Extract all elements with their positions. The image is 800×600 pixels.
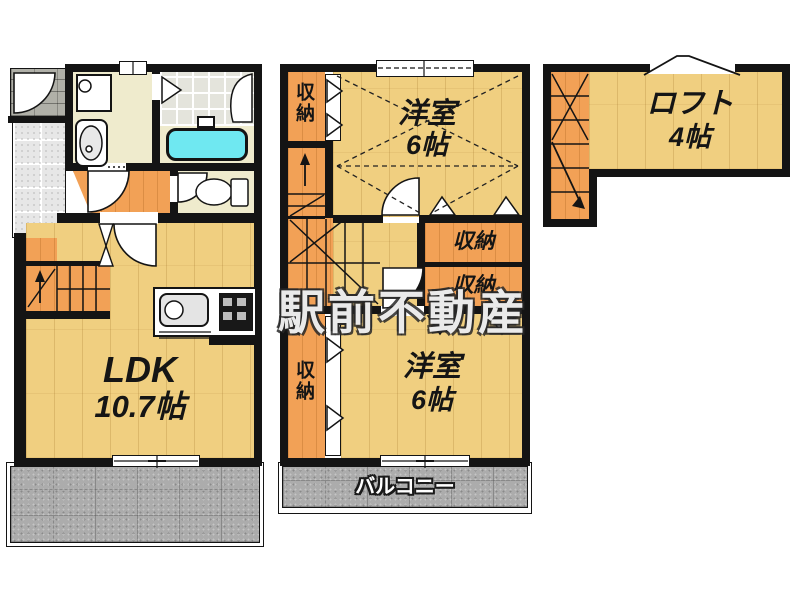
wall: [543, 64, 652, 72]
wall: [65, 64, 262, 72]
stair-cell-2f: [288, 148, 325, 218]
floorplan-canvas: LDK 10.7帖 洋室 6帖 洋室 6帖 収納 収納 収納 収納 ロフト 4帖…: [0, 0, 800, 600]
terrace-outer-border: [6, 462, 264, 547]
wall: [325, 148, 333, 218]
wall: [280, 64, 288, 458]
wall: [425, 262, 522, 267]
kitchen-sink: [159, 293, 209, 327]
window: [112, 455, 200, 467]
wall: [170, 202, 178, 213]
vanity-sink: [75, 119, 108, 167]
wall: [522, 64, 530, 458]
wall: [470, 458, 530, 466]
wall: [152, 64, 160, 74]
wall: [280, 64, 378, 72]
closet-label: 収納: [294, 360, 313, 402]
room-label-loft: ロフト: [615, 90, 765, 119]
loft-floor: [589, 72, 782, 169]
room-size-ldk: 10.7帖: [55, 391, 225, 422]
wall: [288, 216, 325, 219]
wall: [782, 64, 790, 177]
window: [380, 455, 470, 467]
window: [376, 60, 474, 77]
wall: [126, 163, 262, 171]
wall: [8, 116, 73, 123]
entrance-porch: [10, 68, 67, 117]
hallway-floor: [73, 171, 170, 213]
room-label-lower-yoshitsu: 洋室: [352, 353, 512, 382]
wall: [254, 64, 262, 466]
wall: [280, 458, 380, 466]
wall: [543, 64, 551, 227]
bathtub: [166, 128, 248, 161]
first-floor-stairs: [26, 264, 110, 312]
wall: [419, 215, 522, 223]
closet-label: 収納: [294, 82, 313, 124]
wall: [14, 233, 26, 466]
room-label-ldk: LDK: [55, 352, 225, 388]
wall: [14, 261, 110, 266]
bathtub-faucet: [197, 116, 215, 128]
wall: [589, 169, 790, 177]
window: [119, 61, 147, 75]
toilet-room-floor: [178, 171, 254, 213]
loft-ladder: [551, 72, 589, 219]
hall-lower-cell: [26, 238, 57, 263]
stove: [219, 293, 253, 331]
balcony-label: バルコニー: [325, 477, 485, 497]
watermark: 駅前不動産: [278, 274, 528, 343]
wall: [158, 213, 262, 223]
wall: [333, 215, 383, 223]
wall: [57, 213, 100, 223]
wall: [152, 100, 160, 170]
room-size-lower-yoshitsu: 6帖: [352, 387, 512, 414]
wall: [288, 141, 333, 148]
room-label-upper-yoshitsu: 洋室: [352, 100, 502, 129]
room-size-upper-yoshitsu: 6帖: [352, 132, 502, 159]
folding-door-strip: [325, 74, 341, 141]
washing-machine: [76, 74, 112, 112]
wall: [14, 311, 110, 319]
closet-label: 収納: [425, 231, 522, 252]
room-size-loft: 4帖: [615, 124, 765, 151]
wall: [589, 177, 597, 227]
counter-edge: [209, 337, 257, 345]
wall: [170, 171, 178, 176]
